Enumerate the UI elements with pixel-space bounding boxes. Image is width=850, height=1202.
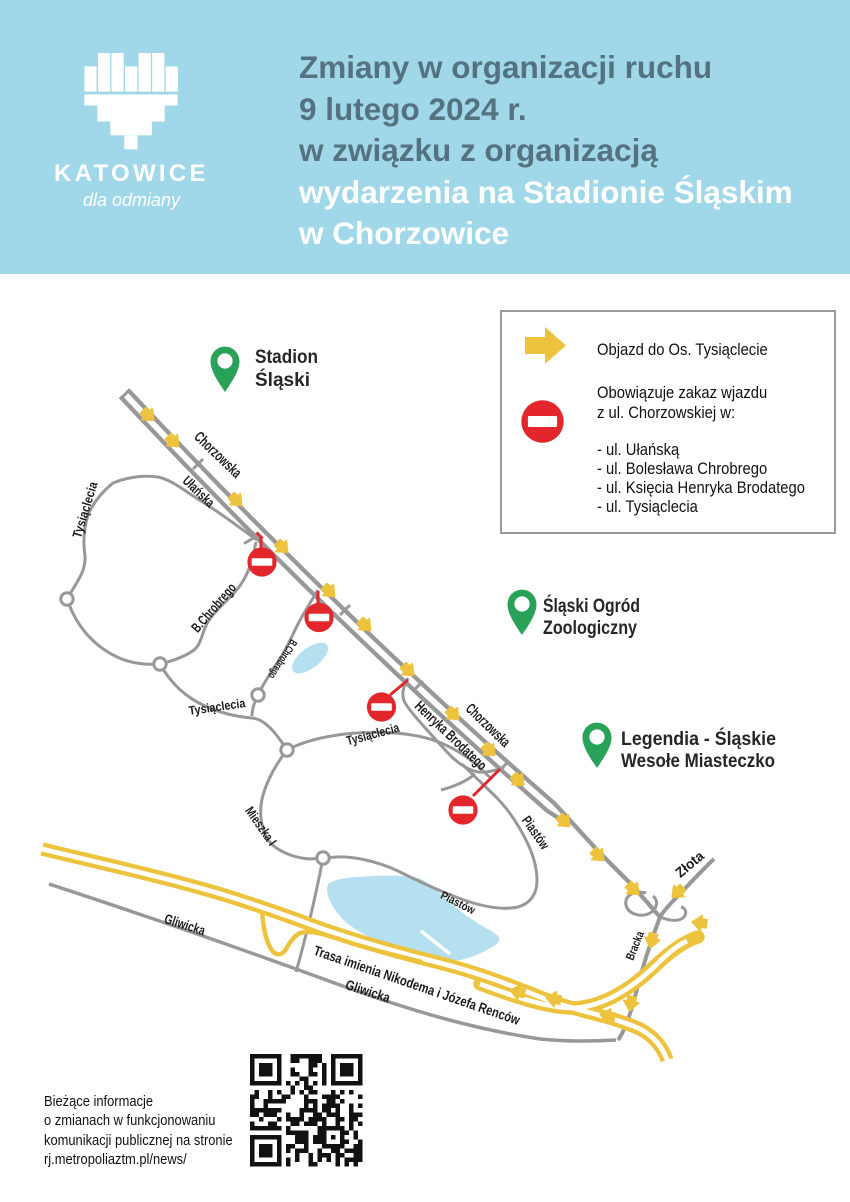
svg-text:Tysiąclecia: Tysiąclecia xyxy=(69,479,100,539)
svg-text:Legendia - Śląskie: Legendia - Śląskie xyxy=(621,728,776,750)
svg-text:B.Chrobrego: B.Chrobrego xyxy=(265,637,299,681)
svg-text:Tysiąclecia: Tysiąclecia xyxy=(188,696,247,718)
svg-text:Chorzowska: Chorzowska xyxy=(191,428,246,482)
svg-text:Wesołe Miasteczko: Wesołe Miasteczko xyxy=(621,751,775,772)
svg-text:Śląski Ogród: Śląski Ogród xyxy=(543,595,640,617)
svg-text:Złota: Złota xyxy=(672,848,707,881)
svg-text:Piastów: Piastów xyxy=(519,813,553,853)
svg-text:Gliwicka: Gliwicka xyxy=(162,910,207,938)
svg-text:Bracka: Bracka xyxy=(623,929,647,962)
svg-text:Tysiąclecia: Tysiąclecia xyxy=(345,720,402,749)
svg-text:Stadion: Stadion xyxy=(255,347,318,368)
svg-text:B.Chrobrego: B.Chrobrego xyxy=(188,580,239,636)
svg-text:Śląski: Śląski xyxy=(255,369,310,391)
svg-text:Zoologiczny: Zoologiczny xyxy=(543,618,637,639)
